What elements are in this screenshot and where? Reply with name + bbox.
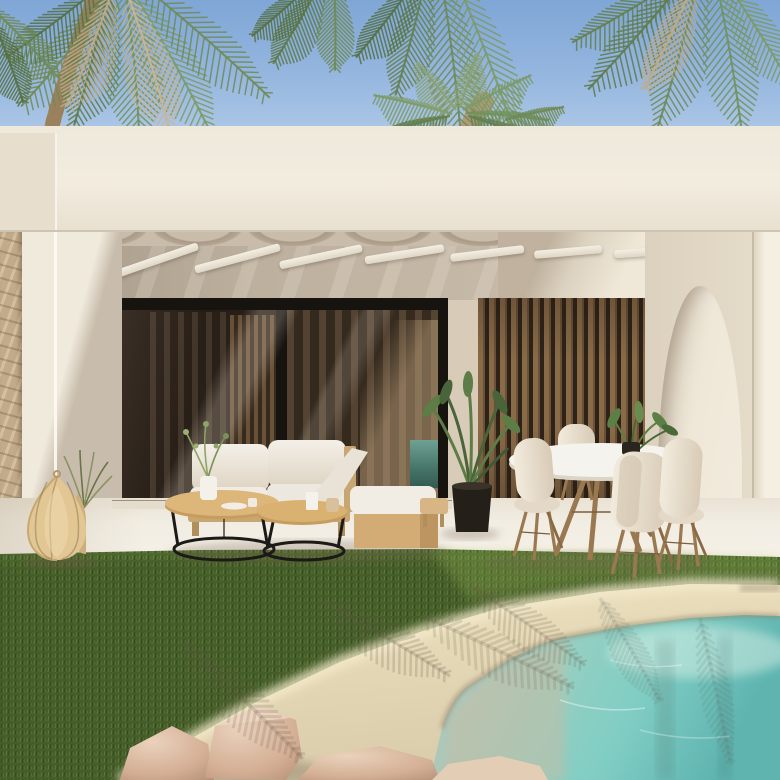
villa-pool-scene [0, 0, 780, 780]
sand-beach-edge [120, 584, 780, 780]
pool-water [430, 615, 780, 780]
door-sill [112, 500, 452, 509]
waterline [442, 615, 780, 728]
water-beige-reflection [440, 640, 565, 780]
rock [205, 706, 302, 780]
rock [432, 756, 548, 780]
roof-fascia [0, 126, 780, 232]
wall-strip [448, 300, 478, 514]
water-bright-patch [608, 626, 780, 678]
rock [120, 726, 214, 780]
sand-bright-rim [120, 584, 780, 780]
roof-fascia-left-wedge [0, 133, 57, 230]
slat-screen-shading [478, 298, 650, 514]
glass-reflection-streaks [122, 310, 438, 502]
rock [298, 746, 440, 780]
